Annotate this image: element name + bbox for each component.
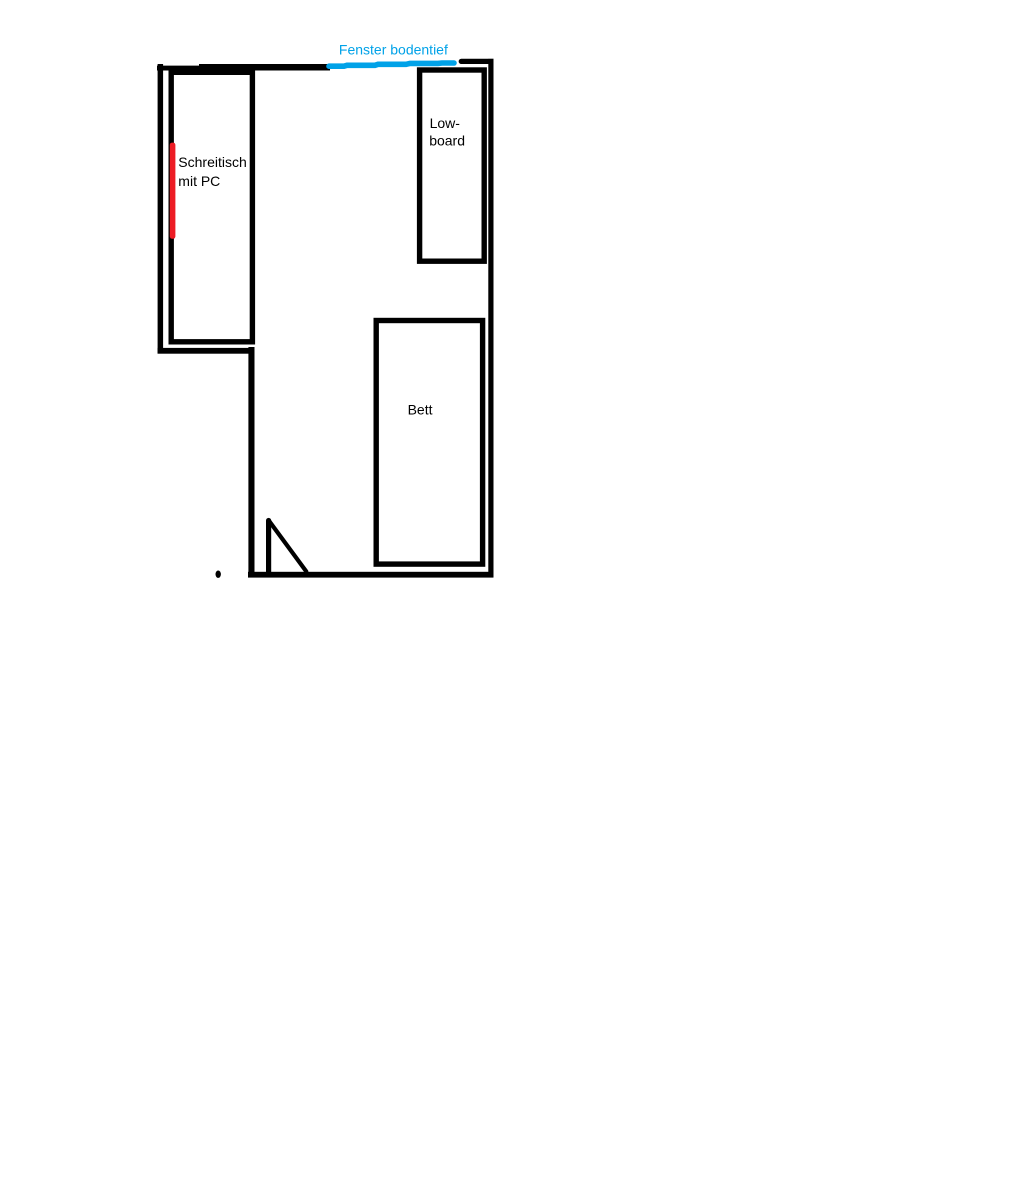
svg-text:Fenster bodentief: Fenster bodentief (339, 42, 448, 58)
svg-text:Low-: Low- (430, 115, 461, 131)
svg-text:Bett: Bett (408, 402, 433, 418)
svg-text:Schreitisch: Schreitisch (178, 154, 246, 170)
svg-text:mit PC: mit PC (178, 173, 220, 189)
svg-text:board: board (429, 133, 465, 149)
